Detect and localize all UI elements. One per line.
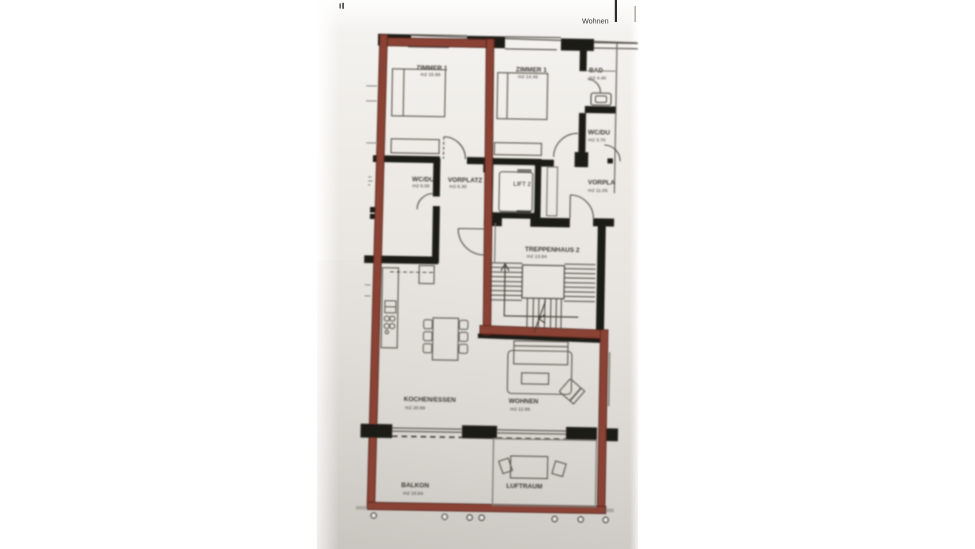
svg-text:m2 10.64: m2 10.64 xyxy=(403,491,423,497)
svg-text:BALKON: BALKON xyxy=(401,482,429,489)
svg-text:m2 13.84: m2 13.84 xyxy=(527,254,547,260)
svg-text:WC/DU: WC/DU xyxy=(588,129,610,136)
svg-text:LUFTRAUM: LUFTRAUM xyxy=(506,483,542,491)
svg-text:Wohnen: Wohnen xyxy=(582,17,609,26)
svg-text:m2 6.00: m2 6.00 xyxy=(412,183,430,189)
svg-text:m2 12.96: m2 12.96 xyxy=(510,406,530,412)
svg-text:m2 14.46: m2 14.46 xyxy=(518,74,538,80)
svg-text:WOHNEN: WOHNEN xyxy=(509,398,539,406)
svg-text:VORPLA: VORPLA xyxy=(588,179,616,186)
svg-text:m2 6.30: m2 6.30 xyxy=(449,184,467,190)
svg-text:VORPLATZ: VORPLATZ xyxy=(448,177,483,185)
svg-text:ZIMMER 1: ZIMMER 1 xyxy=(416,65,448,73)
svg-text:TREPPENHAUS 2: TREPPENHAUS 2 xyxy=(525,246,580,254)
svg-text:LIFT 2: LIFT 2 xyxy=(513,182,531,188)
svg-text:m2 11.05: m2 11.05 xyxy=(588,188,608,194)
svg-text:m2 4.40: m2 4.40 xyxy=(589,75,607,81)
svg-text:KOCHEN/ESSEN: KOCHEN/ESSEN xyxy=(404,396,456,404)
svg-text:m2 15.88: m2 15.88 xyxy=(420,72,440,78)
svg-text:WC/DU: WC/DU xyxy=(412,176,434,183)
svg-text:m2 3.70: m2 3.70 xyxy=(588,137,606,143)
svg-text:m2 20.99: m2 20.99 xyxy=(405,405,425,411)
